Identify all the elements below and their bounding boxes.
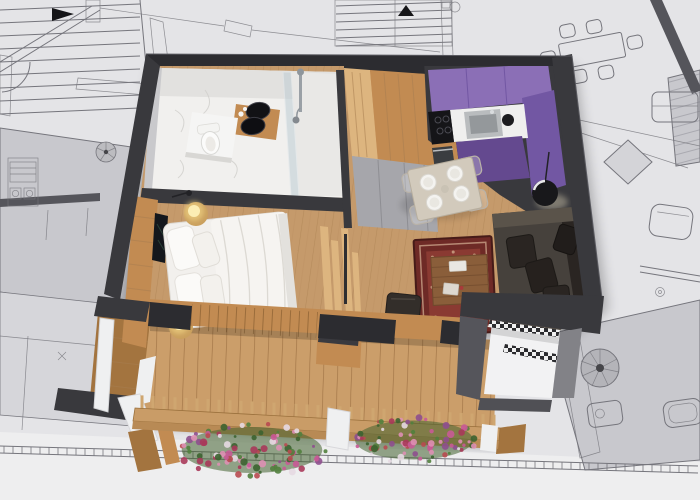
soap-bottle: [243, 107, 247, 111]
cooktop: [428, 110, 454, 145]
scene-svg: [0, 0, 700, 500]
lamp-shade: [532, 180, 558, 206]
wall-stub: [148, 302, 192, 330]
kitchen-black-bowl: [502, 114, 514, 126]
book: [449, 261, 467, 272]
floorplan-render: [0, 0, 700, 500]
white-post: [480, 424, 498, 452]
book: [443, 283, 459, 296]
white-post: [326, 408, 350, 450]
kitchen-sink: [464, 109, 503, 139]
soap-bottle: [238, 111, 243, 116]
slat-gap: [344, 234, 347, 304]
wardrobe-wood-panel: [370, 70, 434, 168]
bathroom: [140, 66, 348, 212]
understructure-wood-strip: [496, 424, 526, 454]
ceiling-fan-symbol-right: [581, 349, 619, 387]
entrance-threshold: [478, 398, 552, 412]
ceiling-fan-symbol-left: [96, 142, 116, 162]
